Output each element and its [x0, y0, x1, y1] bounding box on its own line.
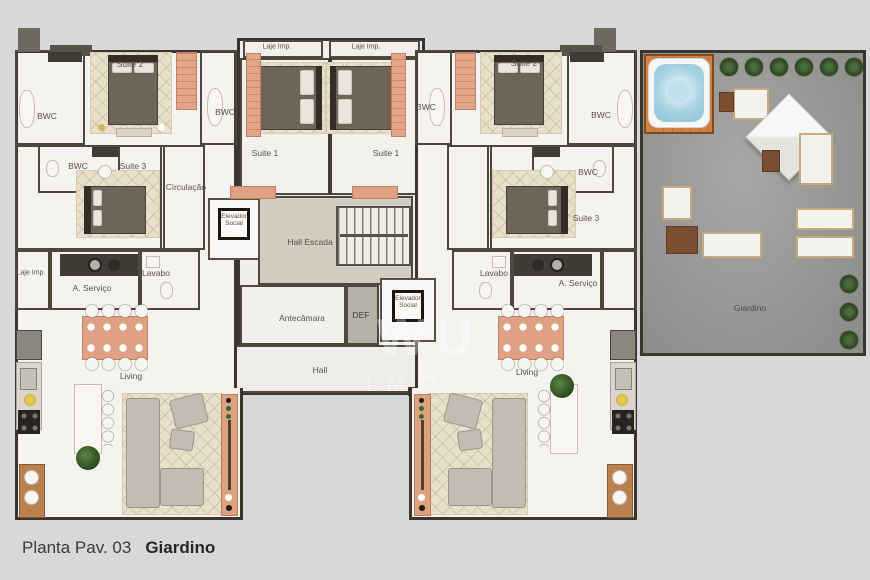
dining-table-right	[498, 316, 564, 360]
sofa-left	[126, 398, 160, 508]
caption-title: Giardino	[145, 538, 215, 557]
island-stools-right	[537, 389, 551, 447]
shrub-row	[718, 56, 866, 80]
vanity	[48, 52, 82, 62]
plant-right	[550, 374, 574, 398]
stairs-rail	[340, 234, 408, 237]
sink	[492, 256, 506, 268]
fridge-right	[610, 330, 636, 360]
sink	[98, 165, 112, 179]
fridge-left	[16, 330, 42, 360]
roof-box-left	[18, 28, 40, 52]
room-label-suite3-right: Suite 3	[573, 213, 599, 223]
room-label-suite1-right: Suite 1	[373, 148, 399, 158]
room-label-suite2-right: Suite 2	[511, 58, 537, 68]
room-label-elevador-left: Elevador Social	[213, 214, 255, 228]
dining-table-left	[82, 316, 148, 360]
pillow	[93, 190, 102, 206]
dining-chairs-bottom-left	[84, 357, 148, 372]
outdoor-sofa-top	[733, 88, 769, 120]
laje-left-room	[15, 250, 50, 310]
outdoor-sofa-right	[799, 133, 833, 185]
chaise-right	[448, 468, 492, 506]
room-label-hall: Hall	[313, 365, 328, 375]
room-label-lavabo-left: Lavabo	[142, 268, 170, 278]
wardrobe-core-r	[391, 53, 406, 137]
room-label-hall-escada: Hall Escada	[287, 237, 332, 247]
pillow	[338, 99, 352, 124]
circulacao-right-corridor	[447, 145, 492, 250]
room-label-bwc-left-core: BWC	[215, 107, 235, 117]
room-label-circulacao: Circulação	[166, 182, 206, 192]
laje-right-room	[602, 250, 637, 310]
room-label-bwc-right-core: BWC	[416, 102, 436, 112]
room-label-suite3-left: Suite 3	[120, 161, 146, 171]
side-table-top	[719, 92, 734, 112]
watermark-logo: WU	[377, 308, 484, 368]
suite2-left-bench	[116, 128, 152, 137]
hot-tub-center	[668, 80, 690, 102]
room-label-antecamara: Antecâmara	[279, 313, 325, 323]
planter-dot	[419, 414, 424, 419]
planter-dot	[226, 406, 231, 411]
panel-light	[418, 494, 425, 501]
bbq-sink	[612, 470, 627, 485]
lamp	[98, 124, 105, 131]
tv-screen-right	[421, 420, 424, 490]
wardrobe-core-left	[230, 186, 276, 199]
washer	[88, 258, 102, 272]
suite3-right-bed	[506, 186, 568, 234]
stove-left	[18, 410, 40, 434]
room-label-aservico-left: A. Serviço	[73, 283, 112, 293]
lamp	[158, 124, 165, 131]
plan-caption: Planta Pav. 03Giardino	[22, 538, 215, 558]
planter-dot	[419, 406, 424, 411]
shrub-column	[838, 272, 862, 354]
room-label-bwc-left-top: BWC	[37, 111, 57, 121]
stove-right	[612, 410, 634, 434]
room-label-bwc-right-top: BWC	[591, 110, 611, 120]
wardrobe-left-unit	[176, 52, 197, 110]
vanity	[570, 52, 604, 62]
washer	[550, 258, 564, 272]
ottoman-left	[169, 428, 196, 451]
suite1-left-headboard	[316, 66, 322, 130]
bbq-sink	[24, 470, 39, 485]
kitchen-sink-left	[20, 368, 37, 390]
room-label-bwc-left-mid: BWC	[68, 161, 88, 171]
tv-screen-left	[228, 420, 231, 490]
toilet	[160, 282, 173, 299]
vanity	[534, 147, 560, 157]
wardrobe-core-right	[352, 186, 398, 199]
room-label-laje-core-left: Laje Imp.	[263, 44, 292, 51]
plant-left	[76, 446, 100, 470]
chaise-left	[160, 468, 204, 506]
toilet	[479, 282, 492, 299]
flowers	[24, 394, 36, 406]
room-label-lavabo-right: Lavabo	[480, 268, 508, 278]
watermark-text: IMÓ	[366, 371, 450, 397]
pillow	[300, 70, 314, 95]
panel-light	[226, 505, 232, 511]
cooktop-round	[108, 259, 120, 271]
room-label-suite2-left: Suite 2	[117, 59, 143, 69]
pillow	[548, 190, 557, 206]
room-label-living-left: Living	[120, 371, 142, 381]
pillow	[300, 99, 314, 124]
wardrobe-core-l	[246, 53, 261, 137]
lounge-chair	[662, 186, 692, 220]
room-label-living-right: Living	[516, 367, 538, 377]
circulacao-corridor	[160, 145, 205, 250]
side-table-mid	[762, 150, 780, 172]
suite1-right-headboard	[330, 66, 336, 130]
toilet	[46, 160, 59, 177]
room-label-aservico-right: A. Serviço	[559, 278, 598, 288]
coffee-table	[666, 226, 698, 254]
cooktop-round	[532, 259, 544, 271]
pillow	[338, 70, 352, 95]
panel-light	[419, 505, 425, 511]
dining-chairs-top-right	[500, 304, 564, 319]
sun-lounger-2	[796, 236, 854, 258]
planter-dot	[419, 398, 424, 403]
sink	[540, 165, 554, 179]
sofa-right	[492, 398, 526, 508]
kitchen-sink-right	[615, 368, 632, 390]
kitchen-island-left	[74, 384, 102, 454]
sink	[146, 256, 160, 268]
pillow	[548, 210, 557, 226]
sun-lounger-1	[796, 208, 854, 230]
bbq-grill	[24, 490, 39, 505]
room-label-suite1-left: Suite 1	[252, 148, 278, 158]
outdoor-bench	[702, 232, 762, 258]
vanity	[92, 147, 118, 157]
room-label-laje-core-right: Laje Imp.	[352, 44, 381, 51]
caption-prefix: Planta Pav. 03	[22, 538, 131, 557]
wardrobe-right-unit	[455, 52, 476, 110]
room-label-giardino: Giardino	[734, 303, 766, 313]
room-label-laje-left: Laje Imp.	[17, 270, 46, 277]
ottoman-right	[457, 428, 484, 451]
pillow	[93, 210, 102, 226]
suite2-right-bench	[502, 128, 538, 137]
panel-light	[225, 494, 232, 501]
suite3-left-headboard	[84, 186, 91, 234]
bathtub	[19, 90, 35, 128]
flowers	[616, 394, 628, 406]
room-label-def: DEF	[353, 310, 370, 320]
dining-chairs-top-left	[84, 304, 148, 319]
floor-plan-canvas: Laje Imp. Laje Imp. Suite 2 BWC BWC BWC …	[0, 0, 870, 580]
planter-dot	[226, 414, 231, 419]
bbq-grill	[612, 490, 627, 505]
bathtub	[617, 90, 633, 128]
island-stools-left	[101, 389, 115, 447]
planter-dot	[226, 398, 231, 403]
room-label-bwc-right-mid: BWC	[578, 167, 598, 177]
suite3-right-headboard	[561, 186, 568, 234]
